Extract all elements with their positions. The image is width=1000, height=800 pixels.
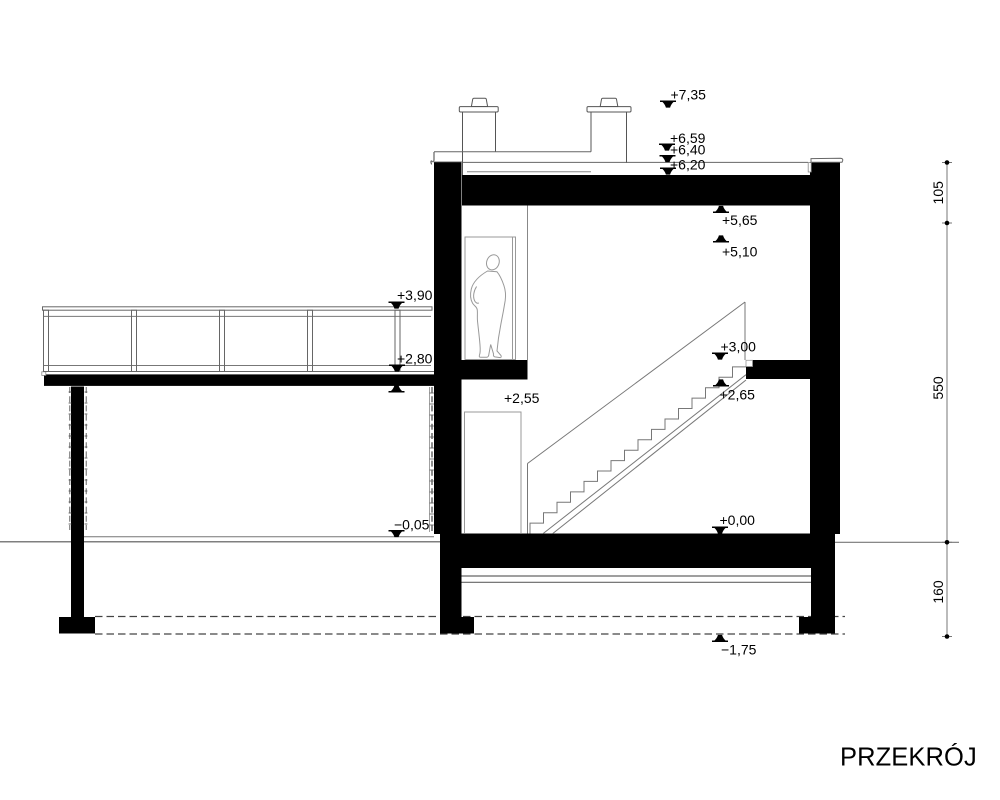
svg-text:−1,75: −1,75	[721, 642, 757, 658]
svg-text:−0,05: −0,05	[394, 517, 430, 533]
svg-text:+2,55: +2,55	[504, 390, 540, 406]
svg-text:+0,00: +0,00	[720, 512, 756, 528]
svg-text:+5,65: +5,65	[722, 212, 758, 228]
svg-text:160: 160	[930, 580, 946, 604]
svg-text:+3,90: +3,90	[397, 287, 433, 303]
svg-text:+6,40: +6,40	[670, 142, 706, 158]
svg-text:+7,35: +7,35	[671, 87, 707, 103]
svg-text:+2,80: +2,80	[397, 351, 433, 367]
svg-text:+5,10: +5,10	[722, 244, 758, 260]
svg-text:550: 550	[930, 376, 946, 400]
svg-text:PRZEKRÓJ: PRZEKRÓJ	[840, 743, 977, 772]
svg-text:+2,65: +2,65	[720, 387, 756, 403]
svg-text:105: 105	[930, 181, 946, 205]
svg-text:+3,00: +3,00	[721, 339, 757, 355]
svg-text:+6,20: +6,20	[670, 157, 706, 173]
